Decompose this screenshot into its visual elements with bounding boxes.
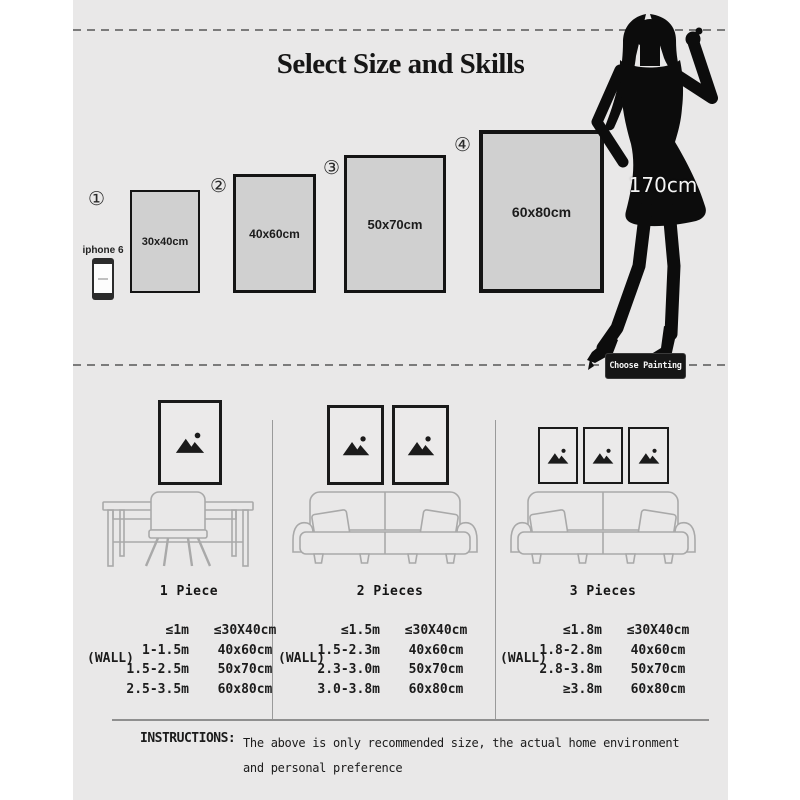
- size-option-3-label: 50x70cm: [368, 217, 423, 232]
- table-row: 2.5-3.5m 60x80cm: [123, 680, 293, 700]
- size-option-3[interactable]: 50x70cm: [344, 155, 446, 293]
- table-row: 1.8-2.8m 40x60cm: [536, 641, 706, 661]
- table-row: 1.5-2.3m 40x60cm: [314, 641, 484, 661]
- recommended-size: 40x60cm: [201, 643, 289, 658]
- image-placeholder-icon: [174, 430, 206, 455]
- size-option-4-label: 60x80cm: [512, 204, 571, 220]
- table-row: 1.5-2.5m 50x70cm: [123, 660, 293, 680]
- recommended-size: ≤30X40cm: [614, 623, 702, 638]
- recommended-size: 50x70cm: [392, 662, 480, 677]
- wall-label: (WALL): [278, 651, 325, 666]
- scene3-picture-frame-1: [538, 427, 578, 484]
- size-option-2-label: 40x60cm: [249, 227, 300, 241]
- instructions-line-1: The above is only recommended size, the …: [243, 731, 713, 756]
- table-row: ≤1m ≤30X40cm: [123, 621, 293, 641]
- recommended-size: 60x80cm: [201, 682, 289, 697]
- footer-divider: [112, 719, 709, 721]
- size-option-1-number: ①: [88, 188, 105, 210]
- scene1-picture-frame: [158, 400, 222, 485]
- table-row: 2.3-3.0m 50x70cm: [314, 660, 484, 680]
- phone-label: iphone 6: [78, 245, 128, 256]
- phone-icon: [92, 258, 114, 300]
- wall-range: ≤1.8m: [536, 623, 602, 638]
- table-row: ≤1.8m ≤30X40cm: [536, 621, 706, 641]
- scene2-label: 2 Pieces: [320, 584, 460, 599]
- recommended-size: ≤30X40cm: [392, 623, 480, 638]
- wall-range: ≥3.8m: [536, 682, 602, 697]
- recommended-size: 60x80cm: [392, 682, 480, 697]
- recommended-size: 40x60cm: [392, 643, 480, 658]
- table-row: ≥3.8m 60x80cm: [536, 680, 706, 700]
- choose-painting-button[interactable]: Choose Painting: [605, 353, 686, 379]
- image-placeholder-icon: [406, 434, 436, 457]
- desk-chair-illustration: [100, 490, 256, 568]
- instructions-line-2: and personal preference: [243, 756, 713, 781]
- size-table-2: (WALL) ≤1.5m ≤30X40cm 1.5-2.3m 40x60cm 2…: [278, 621, 484, 699]
- recommended-size: ≤30X40cm: [201, 623, 289, 638]
- scene2-picture-frame-1: [327, 405, 384, 485]
- scene1-label: 1 Piece: [119, 584, 259, 599]
- wall-label: (WALL): [87, 651, 134, 666]
- recommended-size: 50x70cm: [201, 662, 289, 677]
- table-row: 1-1.5m 40x60cm: [123, 641, 293, 661]
- image-placeholder-icon: [341, 434, 371, 457]
- image-placeholder-icon: [591, 447, 615, 465]
- wall-label: (WALL): [500, 651, 547, 666]
- size-option-2[interactable]: 40x60cm: [233, 174, 316, 293]
- wall-range: 3.0-3.8m: [314, 682, 380, 697]
- size-option-4-number: ④: [454, 134, 471, 156]
- table-row: 2.8-3.8m 50x70cm: [536, 660, 706, 680]
- image-placeholder-icon: [637, 447, 661, 465]
- size-option-2-number: ②: [210, 175, 227, 197]
- size-option-1[interactable]: 30x40cm: [130, 190, 200, 293]
- scene3-picture-frame-3: [628, 427, 669, 484]
- sofa-illustration: [508, 488, 698, 570]
- wall-range: 2.5-3.5m: [123, 682, 189, 697]
- scene3-picture-frame-2: [583, 427, 623, 484]
- recommended-size: 50x70cm: [614, 662, 702, 677]
- recommended-size: 40x60cm: [614, 643, 702, 658]
- wall-range: ≤1.5m: [314, 623, 380, 638]
- sofa-illustration: [290, 488, 480, 570]
- size-table-1: (WALL) ≤1m ≤30X40cm 1-1.5m 40x60cm 1.5-2…: [87, 621, 293, 699]
- table-row: 3.0-3.8m 60x80cm: [314, 680, 484, 700]
- choose-painting-label: Choose Painting: [609, 361, 681, 371]
- scene-divider-2: [495, 420, 496, 720]
- image-placeholder-icon: [546, 447, 570, 465]
- recommended-size: 60x80cm: [614, 682, 702, 697]
- instructions-label: INSTRUCTIONS:: [140, 731, 235, 746]
- size-option-1-label: 30x40cm: [142, 236, 189, 248]
- wall-range: ≤1m: [123, 623, 189, 638]
- table-row: ≤1.5m ≤30X40cm: [314, 621, 484, 641]
- size-table-3: (WALL) ≤1.8m ≤30X40cm 1.8-2.8m 40x60cm 2…: [500, 621, 706, 699]
- size-option-3-number: ③: [323, 157, 340, 179]
- person-height-label: 170cm: [620, 173, 706, 197]
- scene3-label: 3 Pieces: [533, 584, 673, 599]
- scene2-picture-frame-2: [392, 405, 449, 485]
- instructions-text: The above is only recommended size, the …: [243, 731, 713, 780]
